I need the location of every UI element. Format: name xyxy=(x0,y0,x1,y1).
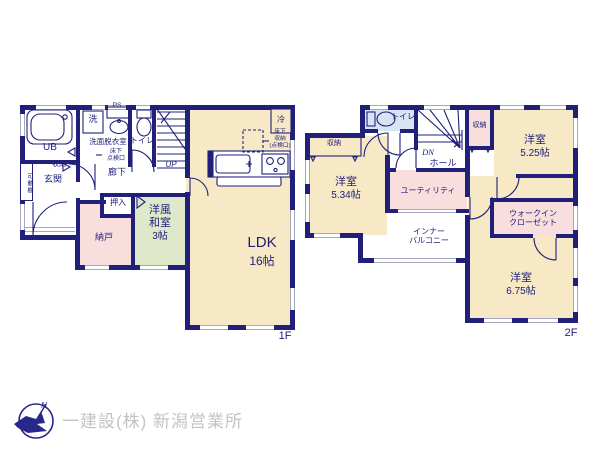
compass-north-label: N xyxy=(38,401,50,410)
wall xyxy=(100,214,135,218)
label-hallway: 廊下 xyxy=(103,167,131,178)
window xyxy=(246,325,274,330)
label-line: 洋室 xyxy=(510,272,532,284)
label-ldk: LDK 16帖 xyxy=(222,234,302,269)
label-line: 洋室 xyxy=(524,134,546,146)
wall xyxy=(490,198,578,202)
window xyxy=(314,233,340,238)
window xyxy=(36,105,66,110)
wall xyxy=(100,193,190,197)
window xyxy=(85,265,109,270)
label-floor-1f: 1F xyxy=(274,330,296,343)
label-line: 5.34帖 xyxy=(331,190,360,201)
wall xyxy=(490,198,494,238)
window xyxy=(140,265,168,270)
label-japanese-room: 洋風 和室 3帖 xyxy=(135,204,185,243)
window xyxy=(424,105,450,110)
label-line: バルコニー xyxy=(409,236,449,245)
label-stairs-down: DN xyxy=(419,147,437,157)
window xyxy=(200,325,228,330)
label-utility: ユーティリティ xyxy=(394,186,462,195)
label-storeroom: 納戸 xyxy=(90,232,118,243)
window xyxy=(136,105,150,110)
wall xyxy=(490,234,533,238)
wall xyxy=(465,146,494,150)
company-name: 一建設(株) 新潟営業所 xyxy=(62,407,243,432)
label-storage-top: 収納 xyxy=(466,122,493,130)
label-line: 床下 xyxy=(110,149,122,155)
label-movable-shelf: 可動棚 xyxy=(22,165,32,201)
wall xyxy=(465,215,470,262)
wall xyxy=(385,155,390,213)
label-hall: ホール xyxy=(427,158,459,169)
label-line: 洋風 xyxy=(149,204,171,216)
toilet-icon-1f xyxy=(137,110,151,136)
wall xyxy=(360,129,378,133)
wall xyxy=(465,262,470,322)
label-oshiire: 押入 xyxy=(104,198,132,207)
label-unit-bath: UB xyxy=(36,142,64,154)
wall xyxy=(516,174,578,178)
wall xyxy=(305,133,310,238)
label-pipe-space: PS xyxy=(106,102,128,110)
wall xyxy=(76,198,80,238)
window xyxy=(573,286,578,312)
wall xyxy=(76,160,80,182)
label-stairs-up: UP xyxy=(162,160,180,169)
label-line: 16帖 xyxy=(249,254,274,268)
balcony-opening xyxy=(374,258,456,263)
label-toilet-2f: トイレ xyxy=(390,112,416,121)
window xyxy=(484,318,512,323)
label-entrance-storage: 収納 xyxy=(46,161,72,169)
window xyxy=(305,160,310,184)
label-bedroom-675: 洋室 6.75帖 xyxy=(490,272,552,298)
entrance-step xyxy=(25,227,75,232)
wall xyxy=(556,234,578,238)
label-line: 5.25帖 xyxy=(520,148,549,159)
label-floor-2f: 2F xyxy=(560,327,582,340)
window xyxy=(573,118,578,148)
bathtub-icon xyxy=(27,110,72,144)
wall xyxy=(20,235,80,240)
door-mark xyxy=(68,148,75,156)
label-floor-storage: 床下 収納 (点検口) xyxy=(265,129,295,149)
label-line: 点検口 xyxy=(107,156,125,162)
wall xyxy=(185,105,190,178)
label-line: LDK xyxy=(247,234,276,251)
label-washroom: 洗面脱衣室 xyxy=(80,138,136,147)
window xyxy=(290,288,295,310)
label-storage-left: 収納 xyxy=(321,140,347,148)
window xyxy=(20,114,25,136)
window xyxy=(305,194,310,222)
window xyxy=(540,105,566,110)
stairs-down xyxy=(418,110,462,150)
wall xyxy=(185,192,190,270)
label-line: 6.75帖 xyxy=(506,286,535,297)
wall xyxy=(185,265,190,330)
label-line: インナー xyxy=(413,227,445,236)
window xyxy=(573,248,578,278)
wall xyxy=(465,147,470,197)
label-line: 洋室 xyxy=(335,176,357,188)
window xyxy=(528,318,558,323)
wall xyxy=(305,133,365,138)
window xyxy=(370,105,388,110)
label-line: 床下 xyxy=(274,129,286,135)
label-bedroom-534: 洋室 5.34帖 xyxy=(315,176,377,202)
label-line: ウォークイン xyxy=(509,209,557,218)
label-toilet-1f: トイレ xyxy=(130,136,154,145)
window xyxy=(500,105,524,110)
label-bedroom-525: 洋室 5.25帖 xyxy=(504,134,566,160)
wall xyxy=(76,105,80,164)
label-line: 3帖 xyxy=(152,231,168,242)
window xyxy=(92,105,105,110)
label-line: 和室 xyxy=(149,217,171,229)
label-washer: 洗 xyxy=(84,114,102,125)
label-walk-in-closet: ウォークイン クローゼット xyxy=(498,209,568,228)
window xyxy=(573,206,578,230)
label-entrance: 玄関 xyxy=(39,174,67,185)
label-line: クローゼット xyxy=(509,218,557,227)
floor-plan-page: 洗 PS 洗面脱衣室 床下 点検口 トイレ UP UB 可動棚 収納 玄関 廊下… xyxy=(0,0,600,450)
window xyxy=(398,209,456,213)
label-fridge: 冷 xyxy=(273,115,289,124)
label-inspection-hatch: 床下 点検口 xyxy=(98,149,134,163)
label-line: 収納 xyxy=(274,136,286,142)
label-line: (点検口) xyxy=(269,143,290,149)
wall xyxy=(465,318,578,323)
label-inner-balcony: インナー バルコニー xyxy=(400,227,458,246)
